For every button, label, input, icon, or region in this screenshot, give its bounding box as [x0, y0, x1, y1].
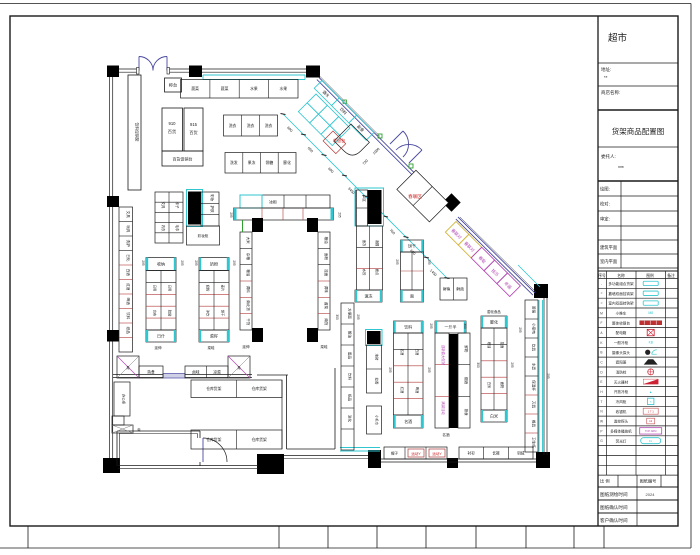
svg-text:监控探头: 监控探头 — [614, 419, 629, 424]
svg-text:鲜奶: 鲜奶 — [464, 345, 469, 353]
svg-text:货架商品配置图: 货架商品配置图 — [612, 126, 665, 136]
svg-text:酱菜: 酱菜 — [324, 302, 329, 310]
svg-text:295: 295 — [510, 362, 514, 368]
svg-text:饮料: 饮料 — [126, 312, 131, 320]
svg-text:2024: 2024 — [646, 492, 656, 497]
svg-text:E: E — [600, 380, 602, 384]
svg-text:图纸确认时间: 图纸确认时间 — [600, 504, 628, 511]
svg-text:洗衣: 洗衣 — [229, 123, 237, 128]
svg-text:调料: 调料 — [246, 286, 251, 294]
svg-text:收银机: 收银机 — [616, 409, 627, 414]
svg-text:调味: 调味 — [324, 286, 329, 294]
svg-text:长裤: 长裤 — [492, 451, 500, 456]
svg-text:备注: 备注 — [667, 273, 675, 278]
svg-text:室内双面挂钩架: 室内双面挂钩架 — [608, 301, 634, 306]
svg-text:啤酒: 啤酒 — [126, 298, 131, 306]
svg-text:水饺: 水饺 — [362, 269, 367, 276]
svg-text:300: 300 — [463, 323, 467, 329]
svg-text:内衣: 内衣 — [161, 225, 166, 232]
svg-text:295: 295 — [356, 314, 360, 320]
svg-text:卫生纸: 卫生纸 — [532, 437, 537, 448]
svg-text:295: 295 — [338, 212, 342, 218]
svg-text:洗化: 洗化 — [348, 415, 353, 423]
svg-text:水壶: 水壶 — [532, 363, 537, 371]
svg-text:蔬菜: 蔬菜 — [191, 86, 199, 91]
svg-text:地砖: 地砖 — [375, 354, 380, 361]
svg-text:冲饮: 冲饮 — [206, 310, 211, 317]
svg-text:名酒: 名酒 — [442, 432, 450, 437]
svg-text:饼干: 饼干 — [408, 243, 416, 249]
svg-text:仓库货架: 仓库货架 — [206, 386, 221, 391]
svg-text:彩妆: 彩妆 — [210, 194, 215, 202]
svg-text:T: T — [601, 400, 603, 404]
svg-text:汤圆: 汤圆 — [375, 240, 380, 247]
svg-text:910: 910 — [169, 121, 177, 126]
svg-text:干货: 干货 — [246, 318, 251, 326]
svg-text:袋糖: 袋糖 — [266, 160, 274, 165]
svg-text:绘图:: 绘图: — [600, 186, 610, 193]
svg-text:面点: 面点 — [375, 269, 380, 276]
svg-text:保温杯: 保温杯 — [532, 380, 537, 391]
svg-text:粮油: 粮油 — [487, 342, 492, 349]
svg-text:超市: 超市 — [608, 32, 628, 44]
svg-text:图纸测绘时间: 图纸测绘时间 — [600, 491, 628, 498]
svg-text:蒸锅: 蒸锅 — [532, 306, 537, 314]
svg-text:角: 角 — [126, 365, 129, 370]
svg-text:玩具: 玩具 — [126, 225, 131, 233]
svg-text:餐具: 餐具 — [532, 420, 537, 428]
svg-text:295: 295 — [427, 367, 431, 373]
svg-text:收纳: 收纳 — [157, 261, 165, 267]
svg-text:=: = — [601, 292, 603, 296]
svg-text:295: 295 — [180, 260, 184, 266]
svg-text:熟食: 熟食 — [464, 409, 469, 417]
svg-text:295: 295 — [395, 259, 399, 265]
svg-text:商店名称:: 商店名称: — [601, 89, 620, 96]
svg-text:洗衣: 洗衣 — [265, 123, 273, 128]
svg-text:比 例: 比 例 — [600, 478, 610, 485]
svg-text:=: = — [601, 302, 603, 306]
svg-text:荧光灯: 荧光灯 — [616, 438, 627, 443]
svg-text:面: 面 — [410, 294, 414, 299]
svg-text:915: 915 — [190, 122, 198, 127]
svg-text:饼干: 饼干 — [221, 310, 226, 317]
svg-text:TOP ARM: TOP ARM — [645, 429, 657, 433]
svg-text:运动Y: 运动Y — [432, 451, 442, 456]
svg-text:小毛巾: 小毛巾 — [375, 415, 380, 425]
svg-text:卤味: 卤味 — [192, 370, 200, 375]
svg-text:摄像头探头: 摄像头探头 — [612, 350, 630, 355]
svg-text:膨化: 膨化 — [490, 319, 498, 325]
svg-text:295: 295 — [232, 260, 236, 266]
svg-text:熟食: 熟食 — [147, 370, 155, 375]
svg-text:日用: 日用 — [153, 285, 157, 292]
svg-text:果冻: 果冻 — [248, 160, 256, 165]
svg-text:客户确认时间: 客户确认时间 — [600, 517, 628, 524]
svg-text:台布: 台布 — [153, 310, 158, 317]
svg-text:序号: 序号 — [598, 273, 606, 278]
svg-text:红酒: 红酒 — [126, 283, 131, 291]
svg-text:称台: 称台 — [169, 82, 177, 89]
svg-text:消防栓: 消防栓 — [616, 370, 627, 375]
svg-text:F: F — [601, 321, 603, 325]
svg-text:***: *** — [618, 166, 624, 172]
svg-text:靠墙双面挂钩架: 靠墙双面挂钩架 — [608, 291, 634, 296]
svg-text:白酒: 白酒 — [126, 269, 131, 277]
svg-text:300: 300 — [335, 314, 339, 320]
svg-text:运动Y: 运动Y — [411, 451, 421, 456]
svg-text:▲: ▲ — [649, 390, 652, 394]
svg-text:洗发: 洗发 — [230, 160, 238, 165]
svg-text:文具: 文具 — [126, 211, 131, 219]
svg-text:挂面: 挂面 — [500, 342, 505, 349]
svg-text:帽子: 帽子 — [391, 451, 399, 456]
svg-text:粮油: 粮油 — [324, 237, 329, 245]
svg-text:百货: 百货 — [189, 129, 197, 136]
svg-text:名称: 名称 — [617, 273, 625, 278]
svg-text:速冻: 速冻 — [362, 240, 367, 247]
svg-text:方便面: 方便面 — [348, 308, 353, 319]
svg-text:春联区: 春联区 — [408, 193, 422, 200]
svg-text:小推车: 小推车 — [616, 311, 627, 316]
svg-text:仓库货架: 仓库货架 — [252, 437, 267, 442]
svg-text:295: 295 — [429, 323, 433, 329]
svg-text:日化: 日化 — [126, 254, 131, 262]
svg-text:膨化: 膨化 — [283, 160, 291, 165]
svg-text:毛巾: 毛巾 — [175, 225, 180, 232]
svg-text:开放冷柜: 开放冷柜 — [614, 389, 629, 394]
svg-text:红酒: 红酒 — [400, 387, 405, 394]
svg-text:B: B — [600, 351, 602, 355]
svg-text:日什: 日什 — [157, 333, 165, 339]
svg-text:鲜肉: 鲜肉 — [456, 287, 464, 292]
svg-text:面粉: 面粉 — [500, 382, 505, 389]
svg-text:挂面: 挂面 — [324, 269, 329, 277]
svg-text:一斤半: 一斤半 — [445, 324, 457, 330]
svg-text:角: 角 — [237, 365, 240, 370]
svg-text:地址:: 地址: — [601, 66, 611, 72]
svg-text:W: W — [600, 420, 603, 424]
svg-text:300: 300 — [476, 362, 480, 368]
svg-text:菜籽: 菜籽 — [210, 333, 218, 339]
svg-text:饮料: 饮料 — [348, 373, 353, 381]
svg-text:295: 295 — [141, 260, 145, 266]
svg-text:饮料: 饮料 — [404, 324, 412, 330]
svg-text:鲜鱼: 鲜鱼 — [443, 287, 451, 292]
svg-text:295: 295 — [229, 212, 233, 218]
svg-text:室内平面: 室内平面 — [600, 258, 618, 265]
svg-text:凉菜: 凉菜 — [213, 370, 221, 375]
svg-text:粮油: 粮油 — [246, 269, 251, 277]
svg-text:蚊香: 蚊香 — [375, 378, 380, 385]
svg-text:满减活动: 满减活动 — [441, 401, 446, 415]
svg-text:大米: 大米 — [246, 237, 251, 245]
svg-text:1 7 1: 1 7 1 — [648, 409, 655, 413]
svg-text:295: 295 — [427, 259, 431, 265]
svg-text:洗护: 洗护 — [126, 240, 131, 248]
svg-text:校对:: 校对: — [600, 201, 610, 208]
svg-text:白酒: 白酒 — [415, 349, 420, 356]
svg-text:延伸: 延伸 — [155, 345, 162, 350]
svg-text:菜畦: 菜畦 — [320, 344, 328, 349]
svg-text:速冻: 速冻 — [365, 293, 373, 299]
svg-text:295: 295 — [546, 373, 550, 379]
svg-text:整体收银台: 整体收银台 — [612, 320, 630, 325]
svg-text:白米: 白米 — [487, 382, 492, 389]
svg-text:一般冷柜: 一般冷柜 — [614, 340, 629, 345]
svg-text:饮料促销架: 饮料促销架 — [135, 123, 140, 142]
svg-text:多功能组合货架: 多功能组合货架 — [608, 281, 634, 286]
svg-text:12: 12 — [649, 419, 653, 423]
svg-text:遮阳蓬: 遮阳蓬 — [616, 360, 627, 365]
svg-text:M8: M8 — [648, 311, 653, 315]
svg-text:灭火器材: 灭火器材 — [614, 379, 629, 384]
svg-text:菜畦: 菜畦 — [208, 345, 215, 350]
svg-text:面粉: 面粉 — [324, 253, 329, 261]
svg-text:百货: 百货 — [168, 128, 176, 135]
svg-text:日用: 日用 — [168, 285, 172, 292]
svg-text:**: ** — [604, 75, 608, 80]
svg-text:洗衣: 洗衣 — [247, 123, 255, 128]
svg-text:蔬菜: 蔬菜 — [221, 86, 229, 91]
svg-text:295: 295 — [194, 260, 198, 266]
svg-text:P: P — [600, 429, 602, 433]
svg-text:延伸: 延伸 — [242, 344, 250, 349]
svg-text:冷风柜: 冷风柜 — [616, 399, 627, 404]
svg-text:护肤: 护肤 — [210, 205, 215, 213]
svg-text:啤酒: 啤酒 — [415, 387, 420, 394]
svg-text:图纸编号: 图纸编号 — [640, 478, 657, 485]
svg-text:名酒: 名酒 — [404, 418, 412, 424]
svg-text:295: 295 — [388, 367, 392, 373]
svg-text:文具: 文具 — [161, 202, 166, 209]
svg-text:羽绒: 羽绒 — [517, 451, 525, 456]
svg-text:膨化食品: 膨化食品 — [487, 309, 501, 314]
svg-text:迎新春大促销: 迎新春大促销 — [441, 345, 446, 366]
svg-text:审定:: 审定: — [600, 216, 610, 223]
svg-text:刀具: 刀具 — [532, 401, 537, 409]
svg-text:水果: 水果 — [250, 86, 258, 91]
svg-text:-: - — [601, 282, 602, 286]
svg-text:295: 295 — [518, 327, 522, 333]
svg-text:水果: 水果 — [280, 86, 288, 91]
svg-text:多媒体播放机: 多媒体播放机 — [610, 429, 632, 434]
svg-text:衬衫: 衬衫 — [468, 451, 476, 456]
svg-text:纸品: 纸品 — [348, 394, 353, 402]
svg-text:杂粮: 杂粮 — [246, 253, 251, 261]
svg-text:奶粉: 奶粉 — [206, 285, 211, 292]
svg-text:南货: 南货 — [324, 318, 329, 326]
svg-text:炊具: 炊具 — [532, 344, 537, 352]
svg-text:蛋品: 蛋品 — [348, 352, 353, 360]
svg-text:图例: 图例 — [646, 273, 654, 278]
svg-text:仓库货架: 仓库货架 — [206, 437, 221, 442]
svg-text:奶粉: 奶粉 — [210, 261, 218, 267]
svg-text:2区: 2区 — [362, 196, 366, 202]
svg-text:名酒: 名酒 — [400, 349, 405, 356]
svg-text:烟酒: 烟酒 — [464, 377, 469, 385]
svg-text:彩妆柜: 彩妆柜 — [198, 233, 209, 238]
svg-text:M: M — [600, 311, 603, 315]
svg-text:小家电: 小家电 — [532, 323, 537, 334]
svg-text:白米: 白米 — [490, 413, 498, 419]
svg-text:办公桌: 办公桌 — [122, 394, 127, 405]
svg-text:仓库货架: 仓库货架 — [252, 386, 267, 391]
svg-text:南北货: 南北货 — [246, 300, 251, 311]
svg-text:袜子: 袜子 — [175, 202, 180, 209]
svg-text:收银台: 收银台 — [333, 137, 346, 144]
svg-text:纸品: 纸品 — [126, 327, 131, 335]
svg-text:百货促销台: 百货促销台 — [173, 156, 193, 162]
svg-text:麦片: 麦片 — [221, 285, 226, 292]
svg-text:KB: KB — [649, 341, 653, 345]
svg-text:建筑平面: 建筑平面 — [600, 244, 618, 251]
svg-text:配电箱: 配电箱 — [616, 330, 627, 335]
svg-text:粮油: 粮油 — [348, 331, 353, 339]
svg-text:冰柜: 冰柜 — [269, 199, 277, 205]
svg-text:委托人:: 委托人: — [601, 153, 616, 159]
svg-text:胶袋: 胶袋 — [168, 310, 173, 317]
